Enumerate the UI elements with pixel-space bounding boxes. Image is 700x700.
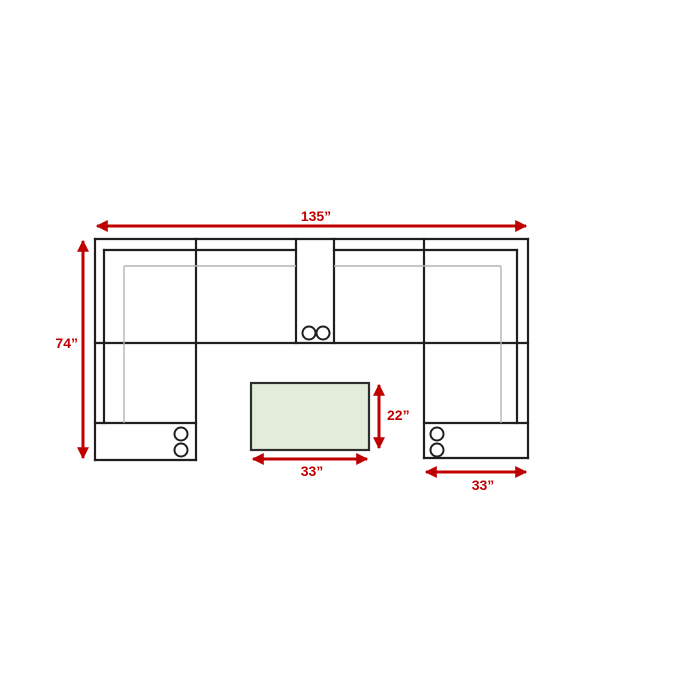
overall-width-label: 135”	[301, 208, 331, 224]
ottoman-depth-label: 22”	[387, 407, 410, 423]
dimension-ottoman-width: 33”	[253, 459, 367, 479]
dimension-ottoman-depth: 22”	[379, 385, 410, 448]
cupholder-icon	[175, 428, 188, 441]
chaise-width-label: 33”	[472, 477, 495, 493]
cupholder-icon	[431, 428, 444, 441]
cupholder-icon	[431, 444, 444, 457]
diagram-canvas: 135” 74” 22” 33” 33”	[0, 0, 700, 700]
dimension-overall-depth: 74”	[55, 241, 83, 458]
sofa-floorplan-diagram: 135” 74” 22” 33” 33”	[0, 0, 700, 700]
ottoman	[251, 383, 369, 450]
cupholder-icon	[317, 327, 330, 340]
overall-depth-label: 74”	[55, 335, 78, 351]
cupholder-icon	[175, 444, 188, 457]
ottoman-width-label: 33”	[301, 463, 324, 479]
cupholder-icon	[303, 327, 316, 340]
dimension-overall-width: 135”	[97, 208, 526, 226]
dimension-chaise-width: 33”	[426, 472, 526, 493]
